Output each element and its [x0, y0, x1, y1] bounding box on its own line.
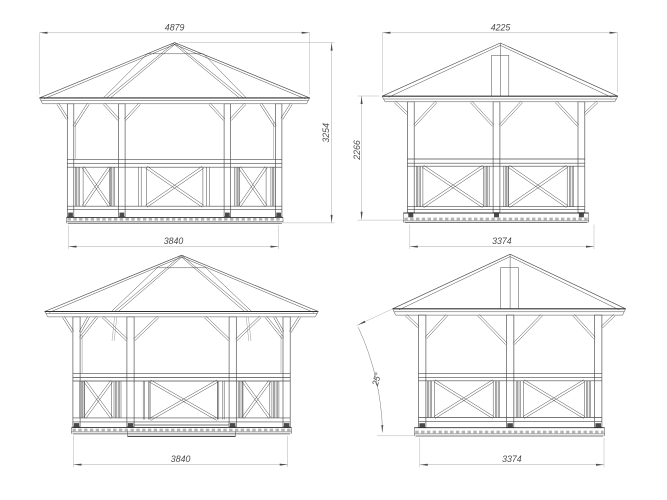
svg-text:2266: 2266 [352, 140, 362, 161]
svg-text:3840: 3840 [164, 236, 184, 246]
svg-text:4225: 4225 [491, 22, 511, 32]
svg-text:3840: 3840 [171, 454, 191, 464]
svg-text:3374: 3374 [492, 236, 512, 246]
svg-text:3254: 3254 [321, 123, 331, 143]
svg-text:4879: 4879 [165, 22, 185, 32]
svg-text:3374: 3374 [502, 454, 522, 464]
